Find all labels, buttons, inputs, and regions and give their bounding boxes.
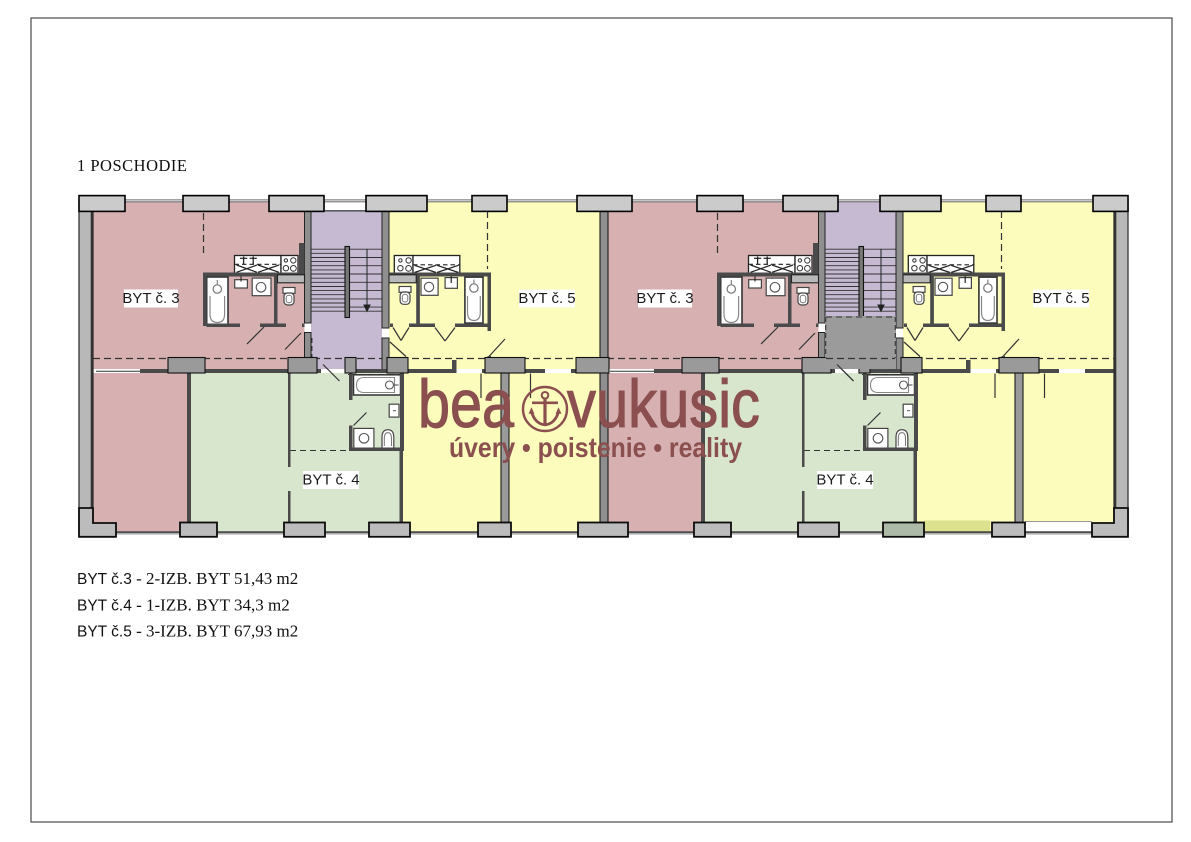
- svg-text:úvery • poistenie • reality: úvery • poistenie • reality: [449, 432, 742, 463]
- svg-text:BYT č.4 - 1-IZB. BYT 34,3 m2: BYT č.4 - 1-IZB. BYT 34,3 m2: [77, 596, 290, 615]
- svg-text:BYT č.5 - 3-IZB. BYT 67,93 m2: BYT č.5 - 3-IZB. BYT 67,93 m2: [77, 622, 298, 641]
- svg-text:BYT č.3 - 2-IZB. BYT 51,43 m2: BYT č.3 - 2-IZB. BYT 51,43 m2: [77, 569, 298, 588]
- svg-text:bea: bea: [418, 366, 514, 442]
- svg-text:vukusic: vukusic: [567, 366, 760, 442]
- svg-text:1 POSCHODIE: 1 POSCHODIE: [77, 156, 187, 175]
